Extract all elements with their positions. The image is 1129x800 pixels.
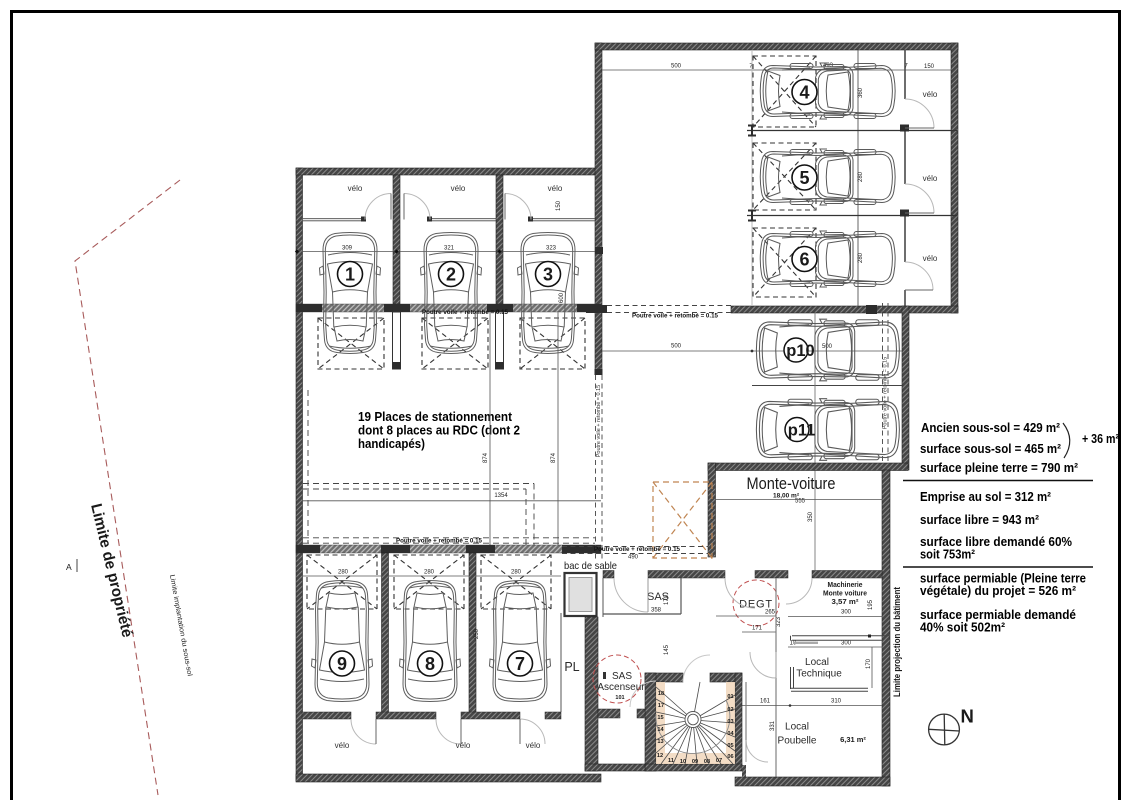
svg-text:Local: Local [785,722,809,733]
svg-text:Poutre voile + retombé = 0.15: Poutre voile + retombé = 0.15 [883,357,889,429]
svg-text:2: 2 [446,265,456,285]
svg-text:vélo: vélo [923,174,938,183]
svg-text:7: 7 [515,654,525,674]
svg-text:Ascenseur: Ascenseur [597,682,645,693]
svg-text:280: 280 [338,570,349,576]
svg-text:195: 195 [868,599,874,610]
svg-text:500: 500 [822,344,833,350]
svg-text:vélo: vélo [548,184,563,193]
svg-text:vélo: vélo [923,254,938,263]
svg-text:170: 170 [866,658,872,669]
svg-text:331: 331 [770,720,776,731]
svg-text:Ancien sous-sol = 429 m²: Ancien sous-sol = 429 m² [921,421,1060,435]
svg-text:40% soit 502m²: 40% soit 502m² [920,621,1005,635]
svg-text:04: 04 [727,731,734,737]
svg-text:280: 280 [424,570,435,576]
svg-text:06: 06 [727,754,733,760]
svg-text:6,31 m²: 6,31 m² [840,735,866,744]
svg-text:300: 300 [841,610,852,616]
svg-text:Emprise au sol = 312 m²: Emprise au sol = 312 m² [920,490,1051,504]
svg-text:surface libre = 943 m²: surface libre = 943 m² [920,513,1039,527]
svg-text:1354: 1354 [494,493,508,499]
svg-text:13: 13 [657,739,663,745]
svg-text:250: 250 [474,628,480,639]
svg-text:280: 280 [858,171,864,182]
svg-text:N: N [961,706,974,727]
svg-text:309: 309 [342,246,353,252]
svg-text:14: 14 [657,727,664,733]
svg-text:vélo: vélo [456,741,471,750]
svg-text:Poutre voile + retombé = 0.15: Poutre voile + retombé = 0.15 [396,538,483,545]
svg-text:323: 323 [776,616,782,627]
svg-text:PL: PL [564,660,579,674]
svg-text:18: 18 [658,691,664,697]
svg-text:07: 07 [716,758,722,764]
svg-text:Poutre voile + retombé = 0.15: Poutre voile + retombé = 0.15 [596,385,602,457]
svg-text:171: 171 [752,626,763,632]
svg-text:4: 4 [799,83,809,103]
svg-text:handicapés): handicapés) [358,437,425,451]
svg-text:08: 08 [704,759,710,765]
svg-text:SAS: SAS [612,671,632,682]
svg-text:490: 490 [628,555,639,561]
svg-text:360: 360 [858,87,864,98]
svg-text:02: 02 [727,707,733,713]
svg-text:161: 161 [760,699,771,705]
svg-text:vélo: vélo [451,184,466,193]
svg-text:600: 600 [559,292,565,303]
svg-text:11: 11 [668,758,674,764]
svg-text:A: A [66,562,72,572]
svg-text:surface sous-sol = 465 m²: surface sous-sol = 465 m² [920,442,1061,456]
svg-text:101: 101 [615,695,624,701]
svg-text:300: 300 [841,641,852,647]
svg-text:Poutre voile + retombé = 0.15: Poutre voile + retombé = 0.15 [632,313,719,320]
svg-text:3: 3 [543,265,553,285]
svg-text:310: 310 [831,699,842,705]
svg-text:874: 874 [483,452,489,463]
svg-text:323: 323 [546,246,557,252]
svg-text:Monte-voiture: Monte-voiture [747,475,836,493]
svg-text:09: 09 [692,759,698,765]
svg-text:dont 8 places au RDC (dont 2: dont 8 places au RDC (dont 2 [358,424,520,438]
svg-text:03: 03 [727,719,733,725]
svg-text:bac de sable: bac de sable [564,560,617,572]
svg-text:p10: p10 [786,342,814,360]
svg-text:Poutre voile + retombé = 0.15: Poutre voile + retombé = 0.15 [594,546,681,553]
svg-text:3,57 m²: 3,57 m² [832,597,860,606]
svg-text:6: 6 [799,250,809,270]
svg-text:p11: p11 [788,421,816,439]
svg-text:150: 150 [924,64,935,70]
svg-text:05: 05 [727,743,733,749]
svg-text:280: 280 [511,570,522,576]
svg-text:500: 500 [671,344,682,350]
svg-text:01: 01 [727,694,733,700]
svg-text:280: 280 [858,252,864,263]
svg-text:Technique: Technique [796,669,842,680]
svg-text:Limite projection du bâtiment: Limite projection du bâtiment [892,587,902,697]
svg-text:vélo: vélo [923,90,938,99]
svg-text:350: 350 [808,511,814,522]
svg-text:9: 9 [337,654,347,674]
svg-text:265: 265 [765,610,776,616]
svg-text:10: 10 [680,759,686,765]
svg-text:8: 8 [425,654,435,674]
svg-text:15: 15 [657,715,663,721]
svg-text:+ 36 m²: + 36 m² [1082,432,1119,446]
svg-text:soit 753m²: soit 753m² [920,548,975,562]
svg-text:358: 358 [651,608,662,614]
svg-text:5: 5 [799,168,809,188]
svg-text:170: 170 [664,594,670,605]
svg-text:500: 500 [671,64,682,70]
svg-text:surface pleine terre = 790 m²: surface pleine terre = 790 m² [920,461,1078,475]
svg-text:Poubelle: Poubelle [778,736,817,747]
svg-text:vélo: vélo [526,741,541,750]
svg-text:150: 150 [556,200,562,211]
svg-text:Local: Local [805,657,829,668]
svg-text:12: 12 [657,753,663,759]
svg-text:vélo: vélo [348,184,363,193]
svg-text:145: 145 [664,644,670,655]
svg-text:321: 321 [444,246,455,252]
svg-text:17: 17 [658,703,664,709]
svg-text:1: 1 [345,265,355,285]
svg-text:874: 874 [551,452,557,463]
svg-text:végétale) du projet = 526 m²: végétale) du projet = 526 m² [920,584,1076,598]
svg-text:Poutre voile + retombé = 0.15: Poutre voile + retombé = 0.15 [422,309,509,316]
svg-text:vélo: vélo [335,741,350,750]
